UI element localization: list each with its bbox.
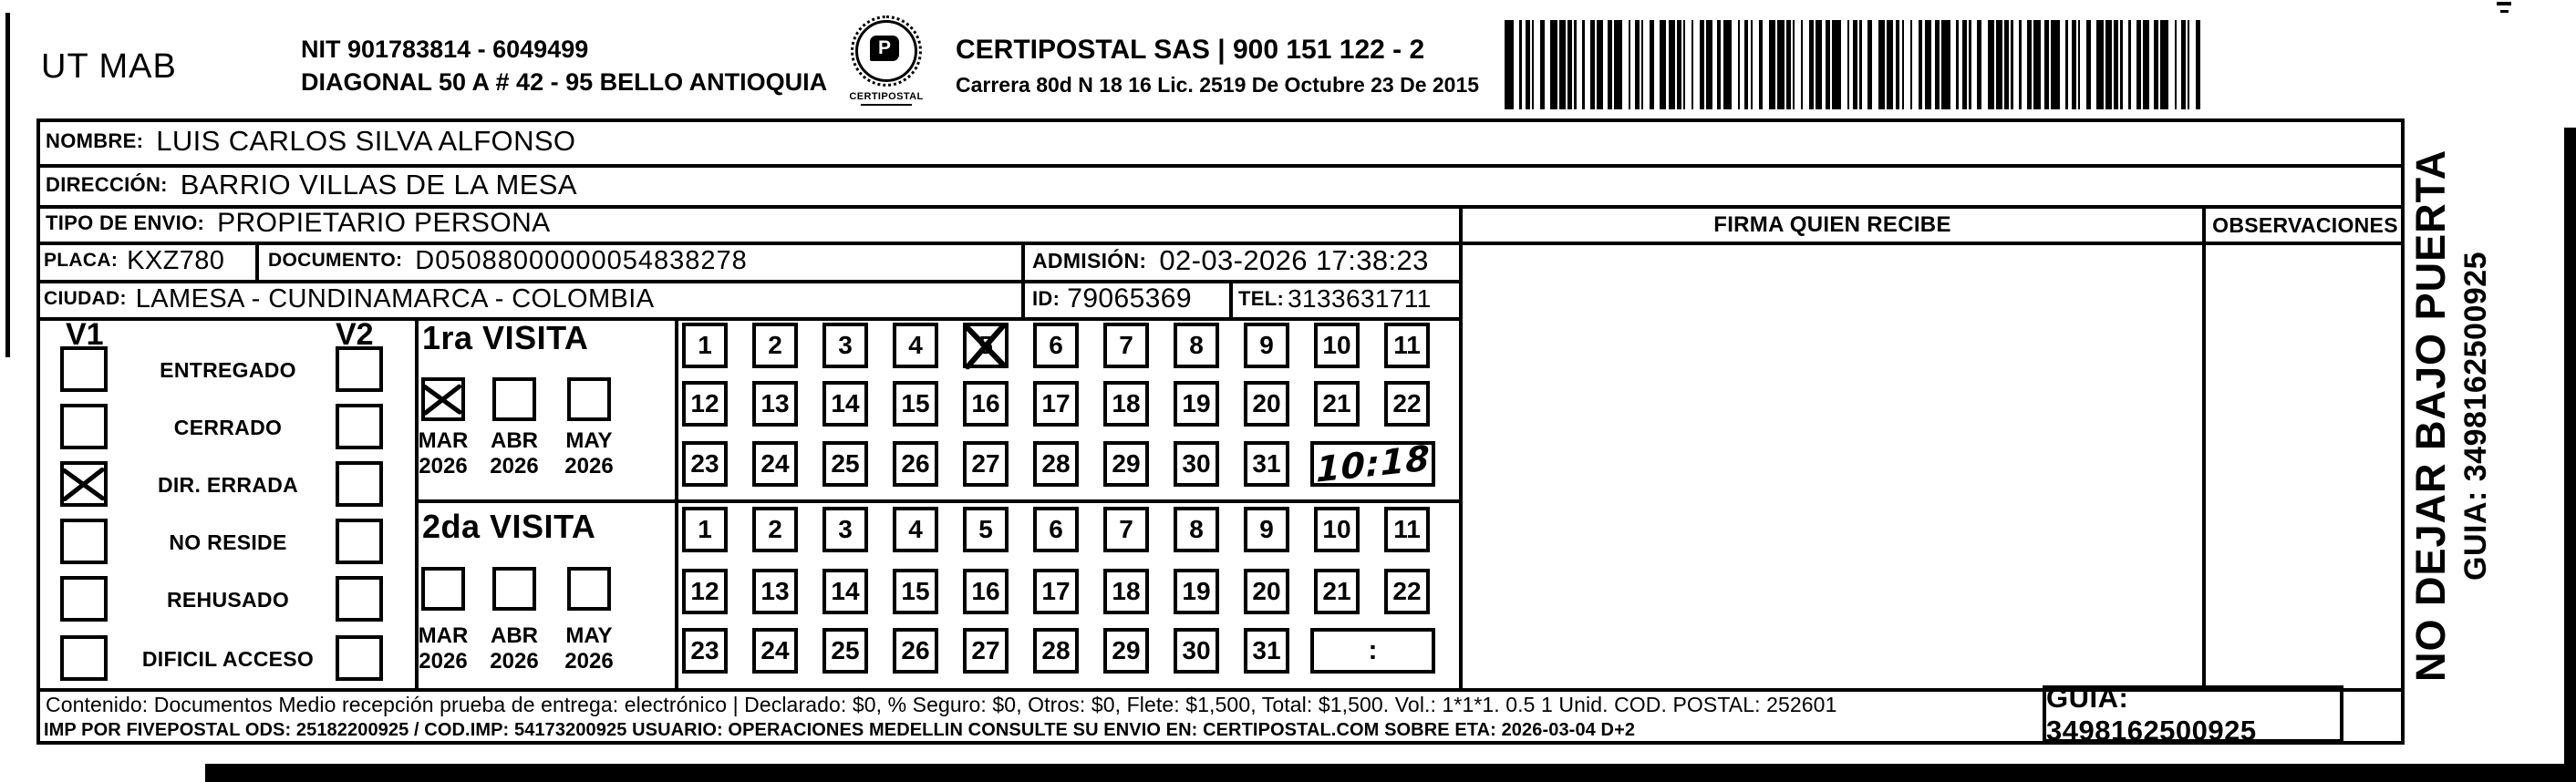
day-cell-28: 28 (1033, 441, 1079, 487)
stamp-logo-text: CERTIPOSTAL (839, 91, 934, 102)
status-panel: V1 V2 ENTREGADOCERRADODIR. ERRADANO RESI… (36, 317, 415, 688)
day-cell-26: 26 (893, 441, 938, 487)
scan-speck-top-right (2497, 2, 2511, 5)
status-label-dificil-acceso: DIFICIL ACCESO (114, 647, 342, 672)
field-admision: ADMISIÓN: 02-03-2026 17:38:23 (1032, 243, 1429, 278)
day-cell-25: 25 (822, 441, 868, 487)
second-visit-panel: 2da VISITAMAR2026ABR2026MAY2026 (415, 499, 675, 688)
visit-title: 1ra VISITA (422, 319, 588, 357)
month-label: ABR (480, 428, 549, 454)
day-cell-2: 2 (752, 323, 798, 368)
firma-signature-area (1463, 245, 2202, 688)
day-cell-31: 31 (1244, 441, 1289, 487)
sender-nit: NIT 901783814 - 6049499 (301, 33, 827, 66)
firma-column-header: FIRMA QUIEN RECIBE (1463, 209, 2202, 242)
day-cell-17: 17 (1033, 381, 1079, 427)
day-cell-29: 29 (1103, 628, 1149, 674)
day-cell-4: 4 (893, 507, 938, 552)
documento-label: DOCUMENTO: (268, 250, 402, 272)
stamp-logo-underline (861, 104, 912, 106)
placa-value: KXZ780 (127, 246, 224, 276)
stamp-p-glyph-icon: P (870, 36, 899, 61)
grid-line (1021, 242, 1025, 317)
side-note-guia: GUIA: 3498162500925 (2458, 153, 2500, 678)
direccion-label: DIRECCIÓN: (46, 173, 168, 197)
admision-value: 02-03-2026 17:38:23 (1159, 244, 1428, 277)
time-note-box: : (1310, 628, 1435, 674)
day-cell-28: 28 (1033, 628, 1079, 674)
day-cell-9: 9 (1244, 507, 1289, 552)
day-cell-6: 6 (1033, 507, 1079, 552)
day-cell-24: 24 (752, 441, 798, 487)
placa-label: PLACA: (44, 250, 118, 272)
month-label: ABR (480, 623, 549, 649)
day-cell-17: 17 (1033, 569, 1079, 614)
field-ciudad: CIUDAD: LAMESA - CUNDINAMARCA - COLOMBIA (44, 282, 655, 316)
day-cell-13: 13 (752, 569, 798, 614)
day-cell-16: 16 (963, 569, 1009, 614)
day-cell-19: 19 (1174, 569, 1219, 614)
day-cell-20: 20 (1244, 569, 1289, 614)
documento-value: D05088000000054838278 (415, 246, 748, 276)
company-block: CERTIPOSTAL SAS | 900 151 122 - 2 Carrer… (956, 35, 1479, 98)
scan-speck-top-right-2 (2500, 10, 2509, 13)
day-cell-5: 5 (963, 507, 1009, 552)
field-placa: PLACA: KXZ780 (44, 243, 224, 278)
day-cell-31: 31 (1244, 628, 1289, 674)
day-cell-7: 7 (1103, 323, 1149, 368)
id-value: 79065369 (1067, 283, 1192, 314)
day-cell-30: 30 (1174, 441, 1219, 487)
observaciones-area (2206, 245, 2405, 688)
status-label-entregado: ENTREGADO (114, 358, 342, 383)
day-cell-23: 23 (682, 628, 728, 674)
direccion-value: BARRIO VILLAS DE LA MESA (181, 169, 577, 201)
scan-edge-artifact-left (5, 13, 10, 357)
month-year-label: 2026 (409, 649, 478, 674)
day-cell-12: 12 (682, 381, 728, 427)
day-cell-7: 7 (1103, 507, 1149, 552)
tel-label: TEL: (1238, 287, 1284, 311)
day-cell-11: 11 (1384, 507, 1430, 552)
field-direccion: DIRECCIÓN: BARRIO VILLAS DE LA MESA (46, 168, 577, 202)
admision-label: ADMISIÓN: (1032, 249, 1146, 273)
certipostal-stamp-icon: P CERTIPOSTAL (839, 20, 934, 117)
time-placeholder: : (1369, 635, 1378, 666)
sender-address: DIAGONAL 50 A # 42 - 95 BELLO ANTIOQUIA (301, 66, 827, 98)
day-cell-3: 3 (822, 323, 868, 368)
day-cell-29: 29 (1103, 441, 1149, 487)
nombre-label: NOMBRE: (46, 129, 143, 153)
month-checkbox-mar (421, 377, 465, 421)
status-checkbox-v2-dificil-acceso (336, 635, 383, 681)
company-license: Carrera 80d N 18 16 Lic. 2519 De Octubre… (956, 73, 1479, 98)
day-cell-18: 18 (1103, 569, 1149, 614)
month-label: MAY (554, 623, 624, 649)
day-cell-1: 1 (682, 323, 728, 368)
day-cell-15: 15 (893, 381, 938, 427)
day-cell-22: 22 (1384, 381, 1430, 427)
status-checkbox-v1-dificil-acceso (60, 635, 108, 681)
day-cell-16: 16 (963, 381, 1009, 427)
tipo-envio-value: PROPIETARIO PERSONA (217, 208, 550, 239)
day-cell-18: 18 (1103, 381, 1149, 427)
day-cell-13: 13 (752, 381, 798, 427)
status-label-cerrado: CERRADO (114, 416, 342, 440)
footer-contenido-line: Contenido: Documentos Medio recepción pr… (46, 693, 1836, 717)
guia-number-box: GUIA: 3498162500925 (2043, 685, 2343, 743)
day-cell-2: 2 (752, 507, 798, 552)
day-cell-8: 8 (1174, 507, 1219, 552)
day-cell-5: 5 (963, 323, 1009, 368)
day-cell-25: 25 (822, 628, 868, 674)
day-cell-8: 8 (1174, 323, 1219, 368)
scan-edge-artifact-bottom (205, 764, 2576, 782)
sender-code: UT MAB (41, 47, 177, 87)
day-cell-6: 6 (1033, 323, 1079, 368)
footer-imp-line: IMP POR FIVEPOSTAL ODS: 25182200925 / CO… (44, 720, 1635, 741)
first-visit-panel: 1ra VISITAMAR2026ABR2026MAY2026 (415, 317, 675, 499)
month-checkbox-may (567, 377, 611, 421)
time-note-box: 10:18 (1310, 441, 1435, 487)
status-checkbox-v2-dir-errada (336, 461, 383, 507)
observaciones-column-header: OBSERVACIONES (2206, 209, 2405, 242)
barcode (1505, 20, 2225, 109)
status-checkbox-v2-rehusado (336, 576, 383, 622)
day-cell-22: 22 (1384, 569, 1430, 614)
day-cell-12: 12 (682, 569, 728, 614)
month-year-label: 2026 (480, 649, 549, 674)
field-id: ID: 79065369 (1032, 282, 1192, 316)
month-checkbox-may (567, 567, 611, 611)
handwritten-time-note: 10:18 (1316, 437, 1430, 489)
month-checkbox-mar (421, 567, 465, 611)
day-cell-4: 4 (893, 323, 938, 368)
day-cell-11: 11 (1384, 323, 1430, 368)
day-cell-14: 14 (822, 381, 868, 427)
day-cell-21: 21 (1314, 569, 1360, 614)
day-cell-3: 3 (822, 507, 868, 552)
status-checkbox-v2-cerrado (336, 404, 383, 449)
day-cell-23: 23 (682, 441, 728, 487)
month-year-label: 2026 (554, 649, 624, 674)
day-cell-24: 24 (752, 628, 798, 674)
first-visit-calendar: 1234567891011121314151617181920212223242… (675, 317, 1463, 499)
ciudad-value: LAMESA - CUNDINAMARCA - COLOMBIA (136, 284, 655, 314)
status-checkbox-v2-entregado (336, 346, 383, 392)
handwritten-x-mark (61, 462, 107, 506)
field-tel: TEL: 3133631711 (1238, 282, 1432, 316)
month-label: MAR (409, 428, 478, 454)
day-cell-14: 14 (822, 569, 868, 614)
status-checkbox-v1-cerrado (60, 404, 108, 449)
sender-nit-block: NIT 901783814 - 6049499 DIAGONAL 50 A # … (301, 33, 827, 98)
field-tipo-envio: TIPO DE ENVIO: PROPIETARIO PERSONA (46, 208, 551, 239)
grid-line (255, 242, 259, 280)
status-label-rehusado: REHUSADO (114, 588, 342, 612)
day-cell-27: 27 (963, 441, 1009, 487)
day-cell-1: 1 (682, 507, 728, 552)
status-checkbox-v2-no-reside (336, 519, 383, 564)
month-label: MAR (409, 623, 478, 649)
day-cell-19: 19 (1174, 381, 1219, 427)
month-year-label: 2026 (409, 454, 478, 479)
status-label-no-reside: NO RESIDE (114, 530, 342, 555)
visit-title: 2da VISITA (422, 508, 595, 546)
day-cell-10: 10 (1314, 507, 1360, 552)
field-documento: DOCUMENTO: D05088000000054838278 (268, 243, 748, 278)
status-checkbox-v1-dir-errada (60, 461, 108, 507)
status-label-dir-errada: DIR. ERRADA (114, 473, 342, 498)
month-year-label: 2026 (554, 454, 624, 479)
day-cell-30: 30 (1174, 628, 1219, 674)
day-cell-27: 27 (963, 628, 1009, 674)
month-year-label: 2026 (480, 454, 549, 479)
stamp-ring-icon: P (855, 20, 917, 82)
day-cell-10: 10 (1314, 323, 1360, 368)
tel-value: 3133631711 (1288, 284, 1432, 314)
ciudad-label: CIUDAD: (44, 288, 127, 310)
waybill-document: UT MAB NIT 901783814 - 6049499 DIAGONAL … (0, 0, 2576, 782)
handwritten-x-mark (964, 324, 1008, 367)
day-cell-9: 9 (1244, 323, 1289, 368)
day-cell-15: 15 (893, 569, 938, 614)
month-checkbox-abr (492, 377, 536, 421)
nombre-value: LUIS CARLOS SILVA ALFONSO (156, 125, 575, 158)
grid-line (1229, 280, 1233, 317)
day-cell-20: 20 (1244, 381, 1289, 427)
status-checkbox-v1-entregado (60, 346, 108, 392)
day-cell-21: 21 (1314, 381, 1360, 427)
tipo-envio-label: TIPO DE ENVIO: (46, 211, 204, 235)
status-checkbox-v1-rehusado (60, 576, 108, 622)
side-note-no-dejar: NO DEJAR BAJO PUERTA (2407, 129, 2458, 702)
day-cell-26: 26 (893, 628, 938, 674)
month-checkbox-abr (492, 567, 536, 611)
handwritten-x-mark (422, 378, 464, 420)
company-name: CERTIPOSTAL SAS | 900 151 122 - 2 (956, 35, 1479, 66)
status-checkbox-v1-no-reside (60, 519, 108, 564)
second-visit-calendar: 1234567891011121314151617181920212223242… (675, 499, 1463, 688)
scan-edge-artifact-right (2564, 128, 2576, 782)
month-label: MAY (554, 428, 624, 454)
field-nombre: NOMBRE: LUIS CARLOS SILVA ALFONSO (46, 120, 575, 162)
id-label: ID: (1032, 287, 1060, 311)
